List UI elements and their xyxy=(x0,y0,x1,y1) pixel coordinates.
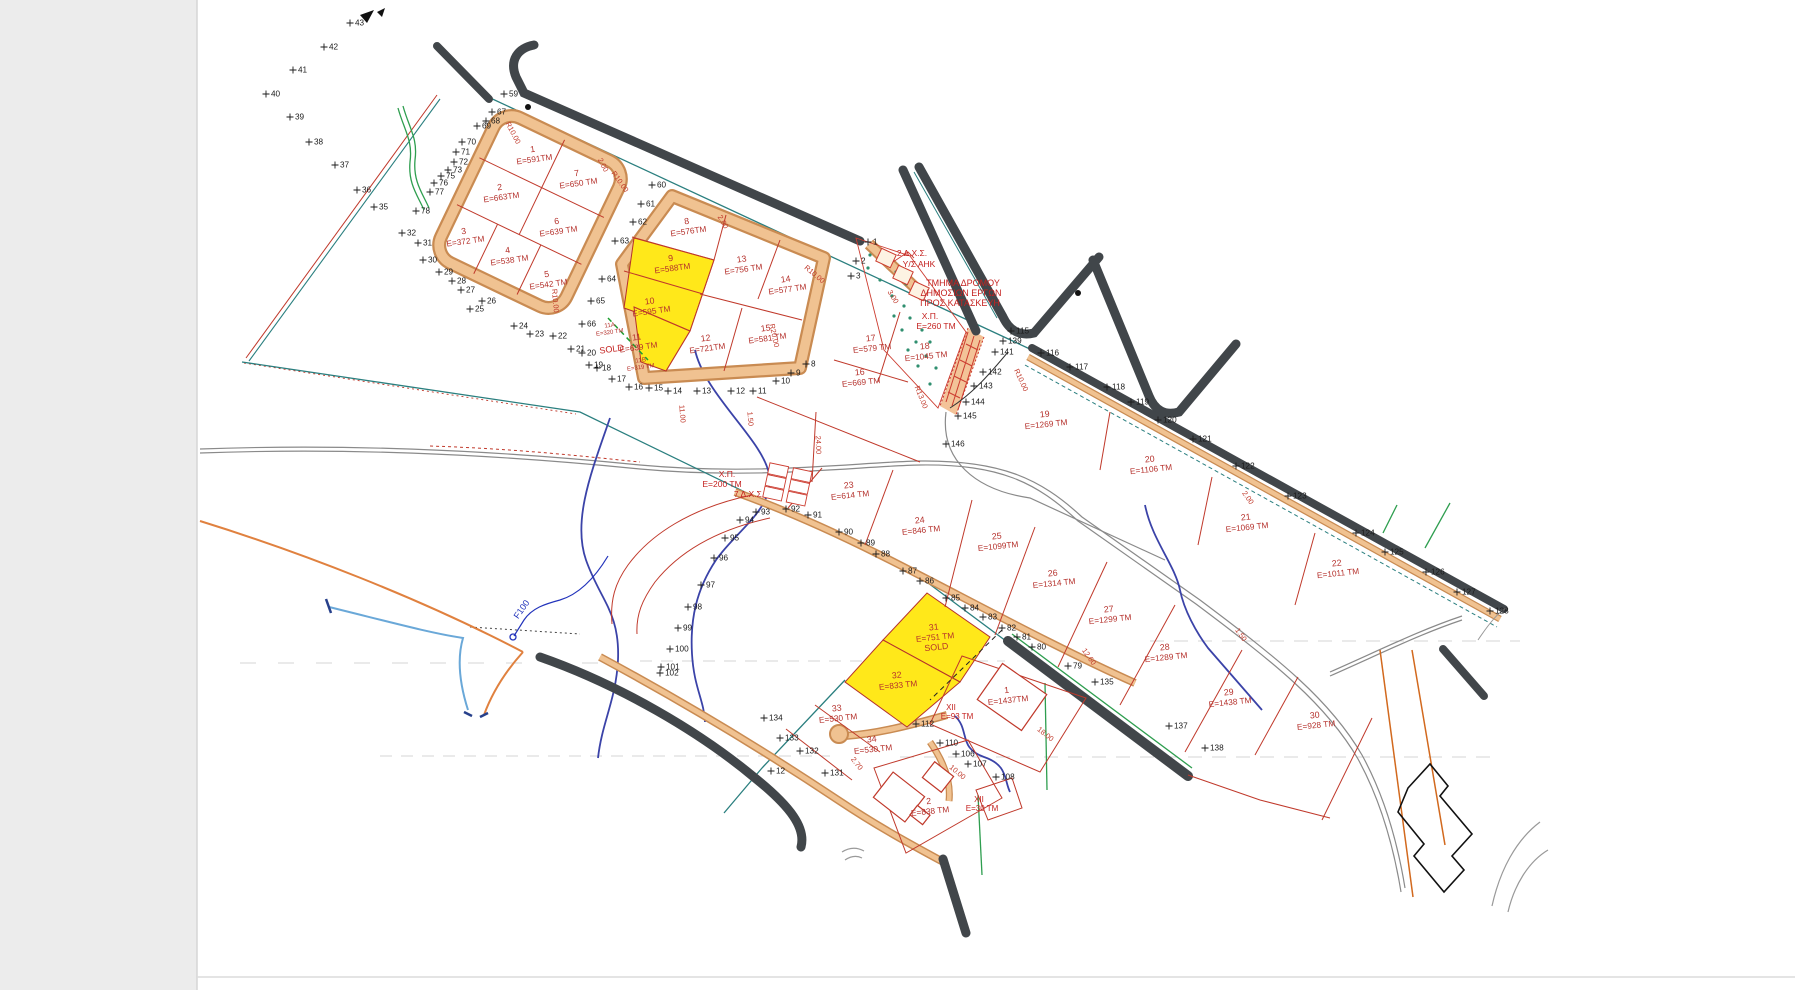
survey-point-32: 32 xyxy=(407,229,417,238)
survey-point-18: 18 xyxy=(602,364,612,373)
survey-point-90: 90 xyxy=(844,528,854,537)
survey-point-43: 43 xyxy=(355,19,365,28)
survey-point-133: 133 xyxy=(785,734,799,743)
survey-point-27: 27 xyxy=(466,286,476,295)
survey-point-64: 64 xyxy=(607,275,617,284)
survey-point-141: 141 xyxy=(1000,348,1014,357)
survey-point-21: 21 xyxy=(576,345,586,354)
annotation-xii30-1: ΧΙΙ xyxy=(974,795,984,804)
survey-point-2: 2 xyxy=(861,257,866,266)
survey-point-137: 137 xyxy=(1174,722,1188,731)
survey-point-116: 116 xyxy=(1046,349,1059,358)
survey-point-121: 121 xyxy=(1198,435,1212,444)
survey-point-132: 132 xyxy=(805,747,819,756)
survey-point-42: 42 xyxy=(329,43,339,52)
survey-point-79: 79 xyxy=(1073,662,1083,671)
survey-point-115: 115 xyxy=(1016,327,1029,336)
annotation-xp260-2: Ε=260 ΤΜ xyxy=(916,321,955,331)
survey-point-91: 91 xyxy=(813,511,823,520)
survey-point-97: 97 xyxy=(706,581,716,590)
survey-point-28: 28 xyxy=(457,277,467,286)
survey-point-107: 107 xyxy=(973,760,987,769)
survey-point-106: 106 xyxy=(961,750,975,759)
annotation-dxs7: 7 Δ.Χ.Σ. xyxy=(734,489,764,499)
culdesac-bulb xyxy=(830,725,848,743)
survey-point-89: 89 xyxy=(866,539,876,548)
survey-point-25: 25 xyxy=(475,305,485,314)
survey-point-29: 29 xyxy=(444,268,454,277)
survey-point-8: 8 xyxy=(811,360,816,369)
survey-point-62: 62 xyxy=(638,218,648,227)
survey-point-11: 11 xyxy=(758,387,767,396)
survey-point-138: 138 xyxy=(1210,744,1224,753)
survey-point-112: 112 xyxy=(921,720,934,729)
annotation-tmima-1: ΤΜΗΜΑ ΔΡΟΜΟΥ xyxy=(926,278,1000,288)
scanned-plan-page: R10.00R10.00R10.00R10.00R10.00R13.00R20.… xyxy=(0,0,1800,990)
survey-point-118: 118 xyxy=(1112,383,1125,392)
annotation-xii93-2: Ε=93 ΤΜ xyxy=(941,712,974,721)
survey-point-22: 22 xyxy=(558,332,568,341)
survey-point-71: 71 xyxy=(461,148,471,157)
survey-point-1: 1 xyxy=(873,238,878,247)
annotation-xp200-2: Ε=200 ΤΜ xyxy=(702,479,741,489)
left-scan-margin xyxy=(0,0,197,990)
dimension-label: 1.50 xyxy=(745,411,755,426)
survey-point-78: 78 xyxy=(421,207,431,216)
survey-point-38: 38 xyxy=(314,138,324,147)
survey-point-14: 14 xyxy=(673,387,683,396)
dimension-label: 11.00 xyxy=(677,404,688,423)
survey-point-99: 99 xyxy=(683,624,693,633)
annotation-xii30-2: Ε=30 ΤΜ xyxy=(966,804,999,813)
survey-point-59: 59 xyxy=(509,90,519,99)
survey-point-84: 84 xyxy=(970,604,980,613)
survey-point-122: 122 xyxy=(1241,462,1255,471)
survey-point-23: 23 xyxy=(535,330,545,339)
survey-point-146: 146 xyxy=(951,440,965,449)
survey-point-125: 125 xyxy=(1390,548,1404,557)
survey-point-36: 36 xyxy=(362,186,372,195)
annotation-xp260-1: Χ.Π. xyxy=(922,311,939,321)
survey-point-123: 123 xyxy=(1293,492,1307,501)
survey-point-65: 65 xyxy=(596,297,606,306)
survey-point-37: 37 xyxy=(340,161,350,170)
survey-point-60: 60 xyxy=(657,181,667,190)
survey-point-20: 20 xyxy=(587,349,597,358)
survey-point-126: 126 xyxy=(1431,568,1445,577)
annotation-dxs2-2: Υ/Σ ΑΗΚ xyxy=(903,259,936,269)
survey-point-83: 83 xyxy=(988,613,998,622)
survey-point-69: 69 xyxy=(482,122,492,131)
survey-point-77: 77 xyxy=(435,188,445,197)
survey-point-95: 95 xyxy=(730,534,740,543)
survey-point-12: 12 xyxy=(736,387,746,396)
annotation-xp200-1: Χ.Π. xyxy=(719,469,736,479)
survey-point-76: 76 xyxy=(439,179,449,188)
cadastral-plan-canvas: R10.00R10.00R10.00R10.00R10.00R13.00R20.… xyxy=(0,0,1800,990)
survey-point-10: 10 xyxy=(781,377,791,386)
survey-point-70: 70 xyxy=(467,138,477,147)
survey-point-81: 81 xyxy=(1022,633,1032,642)
survey-point-24: 24 xyxy=(519,322,529,331)
survey-point-86: 86 xyxy=(925,577,935,586)
survey-point-17: 17 xyxy=(617,375,627,384)
survey-point-13: 13 xyxy=(702,387,712,396)
survey-point-26: 26 xyxy=(487,297,497,306)
survey-point-96: 96 xyxy=(719,554,729,563)
survey-point-110: 110 xyxy=(945,739,958,748)
survey-point-145: 145 xyxy=(963,412,977,421)
survey-point-108: 108 xyxy=(1001,773,1015,782)
survey-point-143: 143 xyxy=(979,382,993,391)
survey-point-80: 80 xyxy=(1037,643,1047,652)
survey-point-85: 85 xyxy=(951,594,961,603)
annotation-dxs2-1: 2 Δ.Χ.Σ. xyxy=(897,248,927,258)
survey-point-100: 100 xyxy=(675,645,689,654)
survey-point-12: 12 xyxy=(776,767,786,776)
survey-point-15: 15 xyxy=(654,384,664,393)
survey-point-67: 67 xyxy=(497,108,507,117)
survey-point-120: 120 xyxy=(1163,416,1177,425)
survey-point-144: 144 xyxy=(971,398,985,407)
survey-point-94: 94 xyxy=(745,516,755,525)
survey-point-16: 16 xyxy=(634,383,644,392)
annotation-tmima-3: ΠΡΟΣ ΚΑΤΑΣΚΕΥΗ xyxy=(920,298,1000,308)
survey-point-134: 134 xyxy=(769,714,783,723)
survey-point-92: 92 xyxy=(791,505,801,514)
survey-point-63: 63 xyxy=(620,237,630,246)
survey-point-41: 41 xyxy=(298,66,308,75)
survey-point-66: 66 xyxy=(587,320,597,329)
survey-point-35: 35 xyxy=(379,203,389,212)
dimension-label: 24.00 xyxy=(814,436,824,455)
survey-point-3: 3 xyxy=(856,272,861,281)
survey-point-82: 82 xyxy=(1007,624,1017,633)
survey-point-87: 87 xyxy=(908,567,918,576)
survey-point-30: 30 xyxy=(428,256,438,265)
survey-point-131: 131 xyxy=(830,769,844,778)
survey-point-9: 9 xyxy=(796,369,801,378)
survey-point-102: 102 xyxy=(665,669,679,678)
survey-point-119: 119 xyxy=(1136,398,1149,407)
survey-point-127: 127 xyxy=(1462,588,1476,597)
survey-point-40: 40 xyxy=(271,90,281,99)
survey-point-98: 98 xyxy=(693,603,703,612)
survey-point-93: 93 xyxy=(761,508,771,517)
survey-point-61: 61 xyxy=(646,200,656,209)
survey-point-39: 39 xyxy=(295,113,305,122)
annotation-xii93-1: ΧΙΙ xyxy=(946,703,956,712)
survey-point-128: 128 xyxy=(1495,607,1509,616)
survey-point-135: 135 xyxy=(1100,678,1114,687)
survey-point-117: 117 xyxy=(1075,363,1088,372)
survey-point-68: 68 xyxy=(491,117,501,126)
survey-point-139: 139 xyxy=(1008,337,1022,346)
survey-point-124: 124 xyxy=(1361,529,1375,538)
annotation-tmima-2: ΔΗΜΟΣΙΩΝ ΕΡΓΩΝ xyxy=(921,288,1002,298)
survey-point-88: 88 xyxy=(881,550,891,559)
survey-point-142: 142 xyxy=(988,368,1002,377)
survey-point-31: 31 xyxy=(423,239,433,248)
